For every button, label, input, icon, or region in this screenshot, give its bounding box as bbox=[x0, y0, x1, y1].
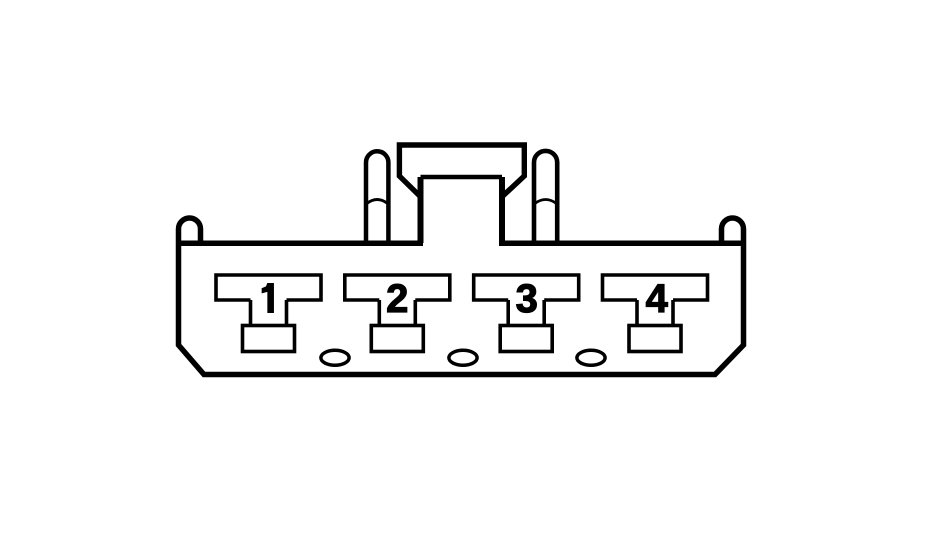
svg-text:2: 2 bbox=[386, 277, 408, 321]
svg-text:4: 4 bbox=[646, 277, 669, 321]
svg-text:3: 3 bbox=[516, 277, 538, 321]
